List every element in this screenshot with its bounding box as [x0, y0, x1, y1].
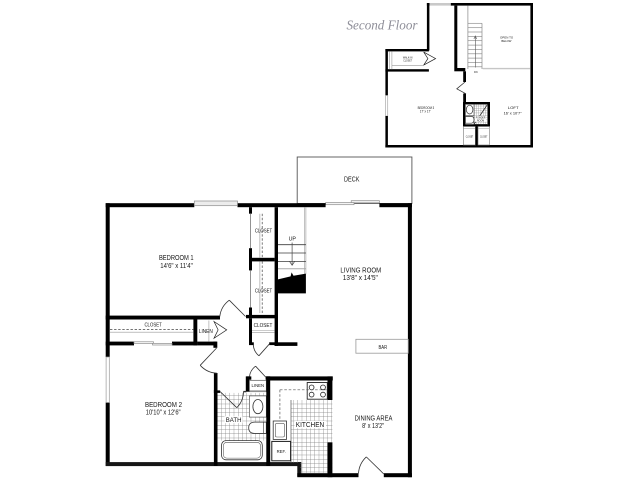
svg-text:CLOSET: CLOSET	[255, 288, 273, 294]
svg-text:8' x 13'2": 8' x 13'2"	[362, 421, 384, 430]
svg-text:10'10" x 12'6": 10'10" x 12'6"	[146, 408, 181, 417]
svg-text:CLOSET: CLOSET	[254, 323, 274, 329]
svg-text:Second Floor: Second Floor	[347, 18, 419, 33]
svg-text:17' x 17': 17' x 17'	[420, 110, 431, 114]
svg-text:BATH: BATH	[226, 417, 242, 424]
svg-text:BAR: BAR	[379, 345, 388, 351]
svg-text:UP: UP	[289, 236, 297, 242]
svg-text:BELOW: BELOW	[501, 39, 511, 43]
svg-text:LINEN: LINEN	[252, 383, 265, 389]
svg-text:DECK: DECK	[344, 177, 360, 184]
svg-text:LOFT: LOFT	[508, 106, 520, 110]
svg-text:CLOSET: CLOSET	[255, 228, 273, 234]
svg-text:KITCHEN: KITCHEN	[296, 422, 325, 429]
svg-text:LINEN: LINEN	[199, 329, 213, 335]
svg-text:ROOM: ROOM	[477, 118, 485, 122]
svg-text:CLOSET: CLOSET	[466, 135, 474, 139]
svg-text:CLOSET: CLOSET	[403, 59, 412, 63]
svg-text:16' x 10'7": 16' x 10'7"	[504, 111, 523, 115]
svg-text:CLOSET: CLOSET	[480, 135, 488, 139]
svg-text:14'6" x 11'4": 14'6" x 11'4"	[160, 261, 193, 270]
svg-text:CLOSET: CLOSET	[144, 322, 162, 328]
svg-text:DN: DN	[474, 70, 478, 74]
svg-text:REF.: REF.	[277, 449, 286, 454]
svg-text:13'8" x 14'5": 13'8" x 14'5"	[343, 273, 378, 282]
